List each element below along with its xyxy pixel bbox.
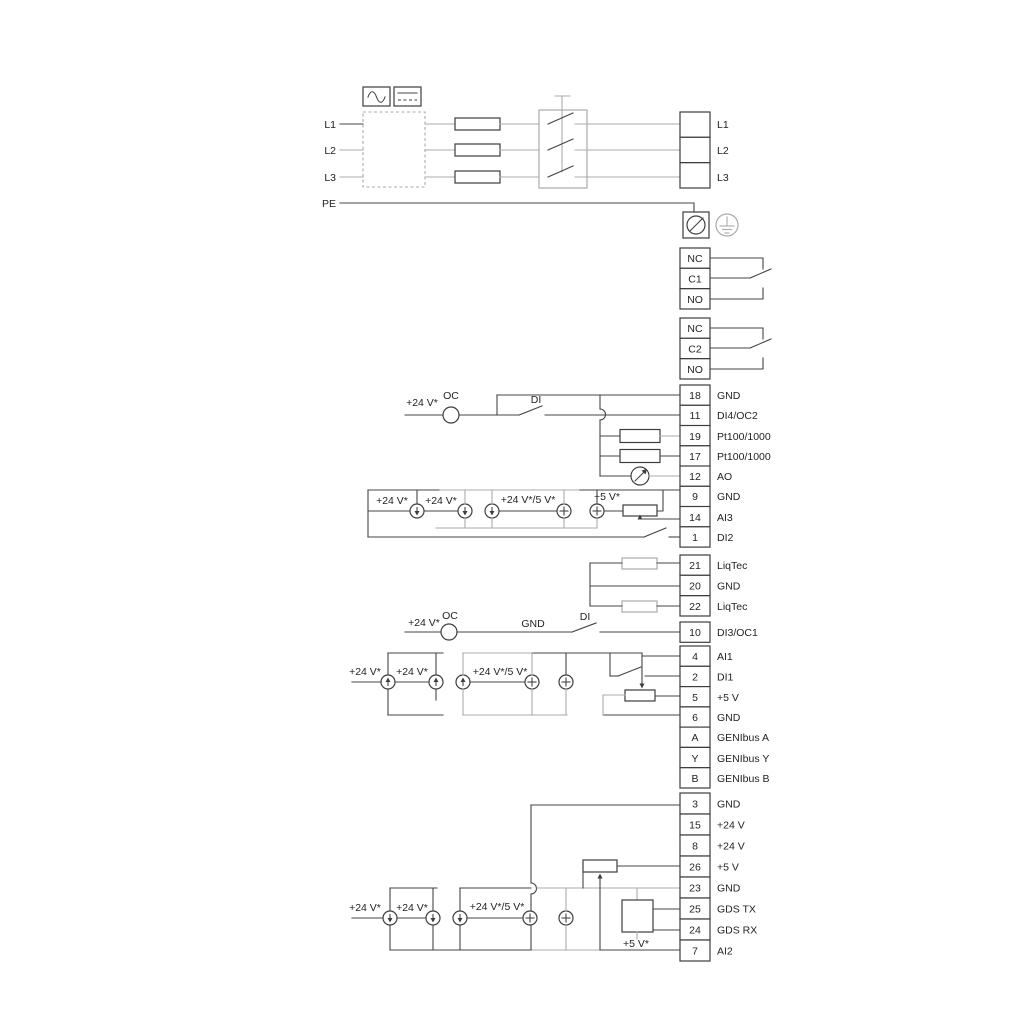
power-output-label-l1: L1	[717, 119, 729, 131]
terminal-label: GENIbus B	[717, 773, 770, 785]
terminal-label: AI2	[717, 946, 733, 958]
terminal-number: A	[691, 732, 698, 744]
terminal-block-liqtec: 21 20 22 LiqTec GND LiqTec	[680, 555, 747, 616]
terminal-number: 3	[692, 799, 698, 811]
terminal-label: GDS RX	[717, 925, 757, 937]
terminal-label: DI3/OC1	[717, 627, 758, 639]
v24-label: +24 V*	[408, 617, 440, 629]
v24-5v-label: +24 V*/5 V*	[473, 666, 528, 678]
terminal-label: Pt100/1000	[717, 431, 771, 443]
terminal-label: AI1	[717, 651, 733, 663]
liqtec-sensor-2	[622, 601, 657, 612]
terminal-number: 9	[692, 491, 698, 503]
wire-hop	[531, 883, 537, 894]
ai1-sensor-circuit: +24 V* +24 V* +24 V*/5 V*	[349, 653, 680, 715]
relay2-nc-label: NC	[687, 323, 703, 335]
mains-terminal-block: L1 L2 L3	[680, 112, 729, 188]
terminal-label: GND	[717, 491, 741, 503]
oc-label: OC	[442, 610, 458, 622]
wiring-diagram: L1 L2 L3 PE	[0, 0, 1024, 1024]
relay2-block: NC C2 NO	[680, 318, 771, 379]
power-input-label-pe: PE	[322, 198, 336, 210]
terminal-number: 6	[692, 712, 698, 724]
terminal-number: 24	[689, 925, 701, 937]
oc-label: OC	[443, 390, 459, 402]
terminal-label: GENIbus A	[717, 732, 769, 744]
power-input-label-l3: L3	[324, 172, 336, 184]
terminal-number: Y	[691, 753, 698, 765]
terminal-label: GENIbus Y	[717, 753, 769, 765]
terminal-label: +24 V	[717, 841, 745, 853]
v24-label: +24 V*	[349, 666, 381, 678]
di4-switch-blade	[519, 406, 542, 415]
potentiometer	[583, 860, 617, 872]
open-collector-icon	[441, 624, 457, 640]
relay1-block: NC C1 NO	[680, 248, 771, 309]
terminal-label: LiqTec	[717, 601, 747, 613]
v5-label: +5 V*	[623, 938, 649, 950]
di-label: DI	[531, 394, 542, 406]
v24-5v-label: +24 V*/5 V*	[501, 494, 556, 506]
pt100-ao-circuit	[600, 395, 680, 485]
terminal-number: 5	[692, 692, 698, 704]
terminal-label: GND	[717, 390, 741, 402]
terminal-number: 14	[689, 512, 701, 524]
terminal-number: 26	[689, 862, 701, 874]
wiring-diagram-page: L1 L2 L3 PE	[0, 0, 1024, 1024]
v24-5v-label: +24 V*/5 V*	[470, 901, 525, 913]
power-input-label-l1: L1	[324, 119, 336, 131]
pt100-sensor-1	[620, 430, 660, 443]
relay1-contact-blade	[750, 269, 771, 278]
v24-label: +24 V*	[376, 495, 408, 507]
power-section: L1 L2 L3 PE	[322, 87, 738, 238]
gnd-label: GND	[521, 618, 545, 630]
terminal-number: B	[691, 773, 698, 785]
terminal-number: 19	[689, 431, 701, 443]
terminal-number: 21	[689, 560, 701, 572]
pt100-sensor-2	[620, 450, 660, 463]
potentiometer	[623, 505, 657, 516]
fuse-l1	[455, 118, 500, 130]
v24-label: +24 V*	[396, 902, 428, 914]
relay1-c1-label: C1	[688, 274, 702, 286]
di1-switch-blade	[618, 667, 641, 676]
terminal-label: DI4/OC2	[717, 410, 758, 422]
di-label: DI	[580, 611, 591, 623]
terminal-label: +5 V	[717, 862, 739, 874]
terminal-number: 18	[689, 390, 701, 402]
terminal-number: 4	[692, 651, 698, 663]
terminal-number: 25	[689, 904, 701, 916]
power-input-label-l2: L2	[324, 145, 336, 157]
power-output-label-l2: L2	[717, 145, 729, 157]
terminal-label: AI3	[717, 512, 733, 524]
v24-label: +24 V*	[425, 495, 457, 507]
relay2-no-label: NO	[687, 364, 703, 376]
dc-symbol-box	[394, 87, 421, 106]
power-output-label-l3: L3	[717, 172, 729, 184]
terminal-label: AO	[717, 471, 732, 483]
ai2-gds-circuit: +24 V* +24 V* +24 V*/5 V*	[349, 805, 680, 950]
terminal-number: 22	[689, 601, 701, 613]
terminal-number: 1	[692, 532, 698, 544]
terminal-number: 20	[689, 581, 701, 593]
terminal-block-di3: 10 DI3/OC1	[680, 622, 758, 642]
terminal-block-io2: 4 2 5 6 A Y B AI1 DI1 +5 V GND GENIbus A…	[680, 646, 770, 788]
fuse-l3	[455, 171, 500, 183]
terminal-label: GND	[717, 712, 741, 724]
terminal-label: GND	[717, 883, 741, 895]
main-switch	[539, 96, 587, 188]
di3-switch-blade	[572, 623, 596, 632]
terminal-label: DI1	[717, 672, 734, 684]
potentiometer	[625, 690, 655, 701]
di2-switch-blade	[644, 528, 666, 537]
terminal-label: +5 V	[717, 692, 739, 704]
relay2-c2-label: C2	[688, 344, 702, 356]
terminal-number: 8	[692, 841, 698, 853]
v24-label: +24 V*	[349, 902, 381, 914]
v24-label: +24 V*	[406, 397, 438, 409]
ai3-sensor-circuit: +24 V* +24 V* +24 V*/5 V*	[368, 490, 680, 537]
terminal-label: GND	[717, 799, 741, 811]
terminal-number: 10	[689, 627, 701, 639]
wiper-arrow	[640, 684, 645, 689]
open-collector-icon	[443, 407, 459, 423]
terminal-number: 17	[689, 451, 701, 463]
terminal-label: DI2	[717, 532, 734, 544]
v24-label: +24 V*	[396, 666, 428, 678]
terminal-number: 2	[692, 672, 698, 684]
terminal-label: Pt100/1000	[717, 451, 771, 463]
fuse-l2	[455, 144, 500, 156]
terminal-label: GDS TX	[717, 904, 756, 916]
terminal-number: 15	[689, 820, 701, 832]
di4-oc2-circuit: +24 V* OC DI	[405, 390, 680, 423]
pe-earth-section	[340, 203, 738, 238]
terminal-number: 7	[692, 946, 698, 958]
relay1-no-label: NO	[687, 294, 703, 306]
gds-sensor-box	[622, 900, 653, 932]
v5-label: +5 V*	[594, 491, 620, 503]
terminal-number: 12	[689, 471, 701, 483]
terminal-label: GND	[717, 581, 741, 593]
terminal-number: 11	[690, 410, 701, 422]
liqtec-circuit: 21 20 22 LiqTec GND LiqTec	[590, 555, 747, 616]
terminal-number: 23	[689, 883, 701, 895]
liqtec-sensor-1	[622, 558, 657, 569]
relay2-contact-blade	[750, 339, 771, 348]
relay1-nc-label: NC	[687, 253, 703, 265]
terminal-label: LiqTec	[717, 560, 747, 572]
terminal-label: +24 V	[717, 820, 745, 832]
terminal-block-io1: 18 11 19 17 12 9 14 1 GND DI4/OC2 Pt100/…	[680, 385, 771, 547]
terminal-block-io3: 3 15 8 26 23 25 24 7 GND +24 V +24 V +5 …	[680, 793, 757, 961]
filter-box	[363, 112, 425, 187]
